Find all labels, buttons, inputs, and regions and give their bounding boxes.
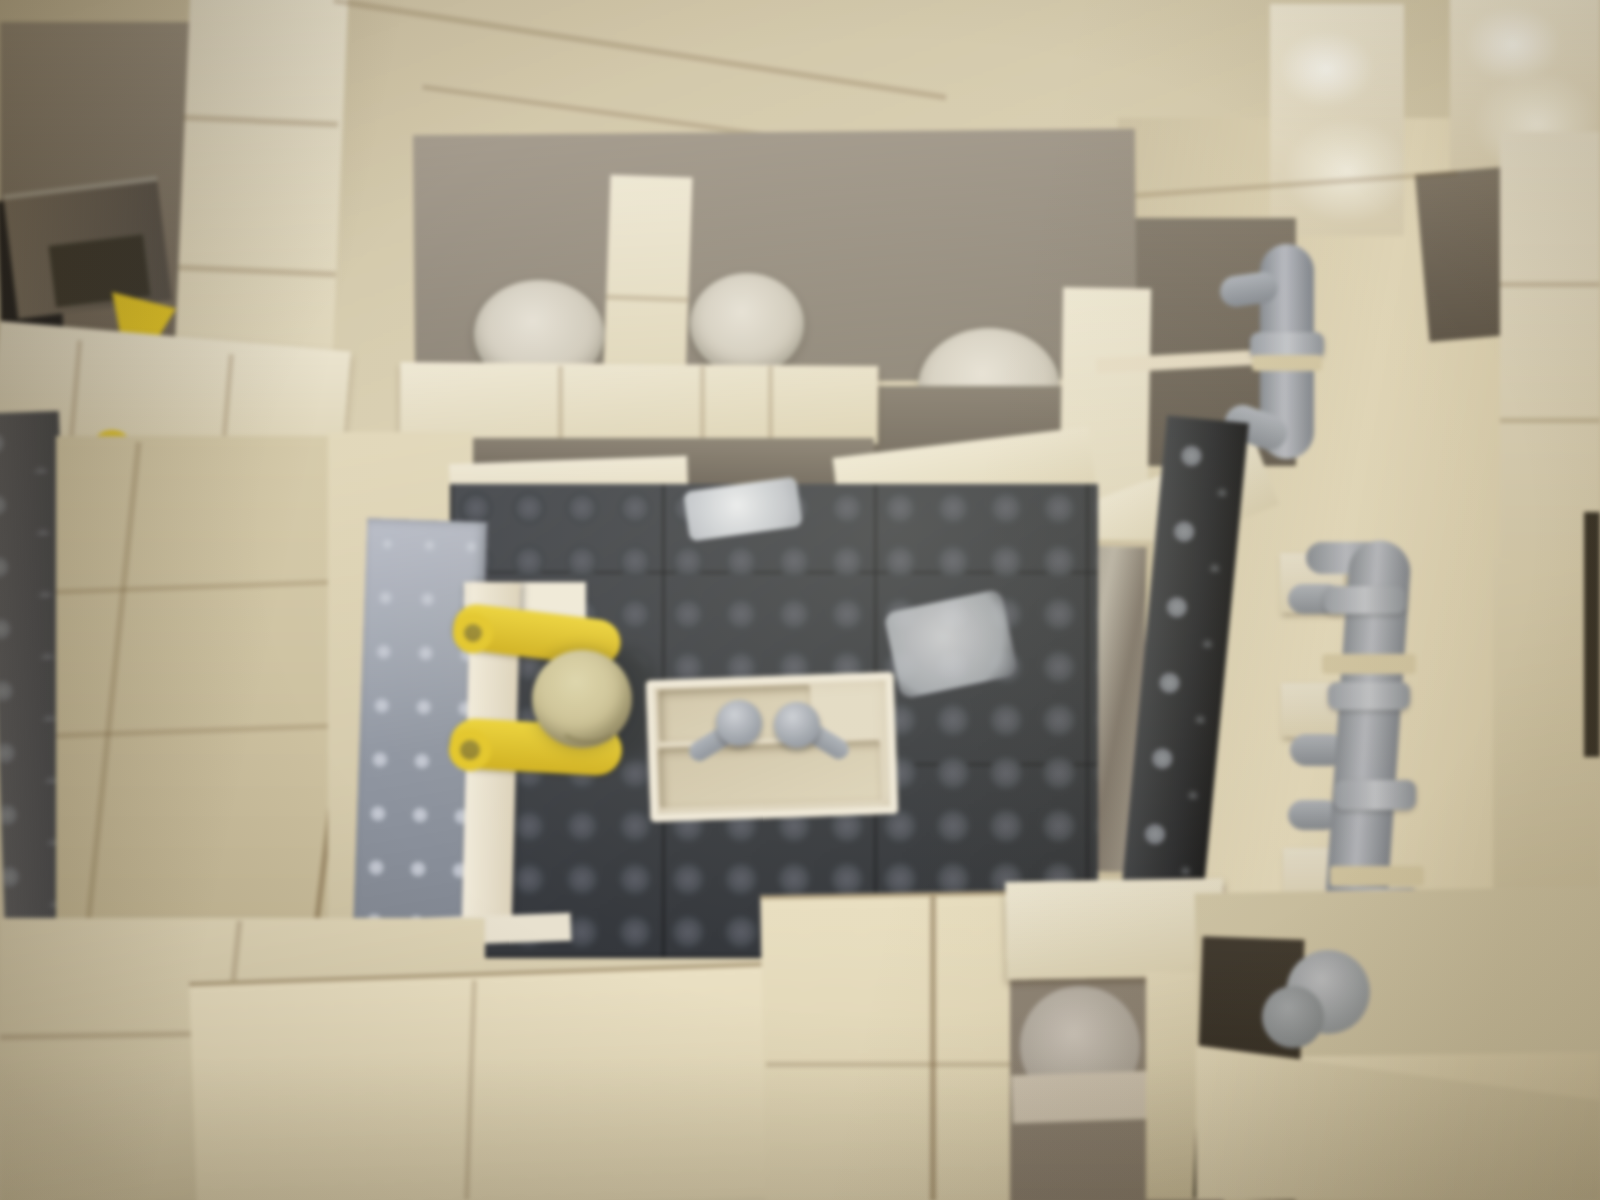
pipe-collar [1334, 780, 1416, 810]
tan-brick-tab [1322, 654, 1416, 674]
sink-tap [716, 700, 762, 746]
photo-scene [0, 0, 1600, 1200]
toilet-bowl-2 [690, 273, 804, 375]
tan-brick-tab [1330, 866, 1424, 886]
pipe-end-disc [1262, 986, 1324, 1048]
glossy-tile [1270, 4, 1404, 236]
minifig-hand [453, 613, 493, 653]
foreground-wall [760, 891, 1023, 1200]
brick-seam [768, 366, 773, 442]
brick-seam [1500, 418, 1600, 423]
alcove-lintel [1005, 878, 1225, 980]
brick-seam [930, 896, 936, 1200]
foreground-wall [189, 962, 787, 1200]
right-edge-wall [1500, 132, 1600, 576]
minifig-hand [449, 729, 491, 771]
sink-tap [774, 702, 820, 748]
brick-seam [558, 366, 563, 442]
brick-seam [700, 366, 705, 442]
brick-seam [766, 1062, 1021, 1067]
tan-brick-tab [1252, 355, 1322, 371]
brick-seam [1500, 282, 1600, 287]
dark-opening [49, 234, 151, 307]
dark-gap [1584, 512, 1600, 757]
pipe-collar [1328, 682, 1410, 710]
sink-unit [646, 672, 899, 823]
minifig-head-highlight [556, 700, 622, 744]
lego-bathroom-photo [0, 0, 1600, 1200]
pipe-collar [1324, 586, 1406, 614]
